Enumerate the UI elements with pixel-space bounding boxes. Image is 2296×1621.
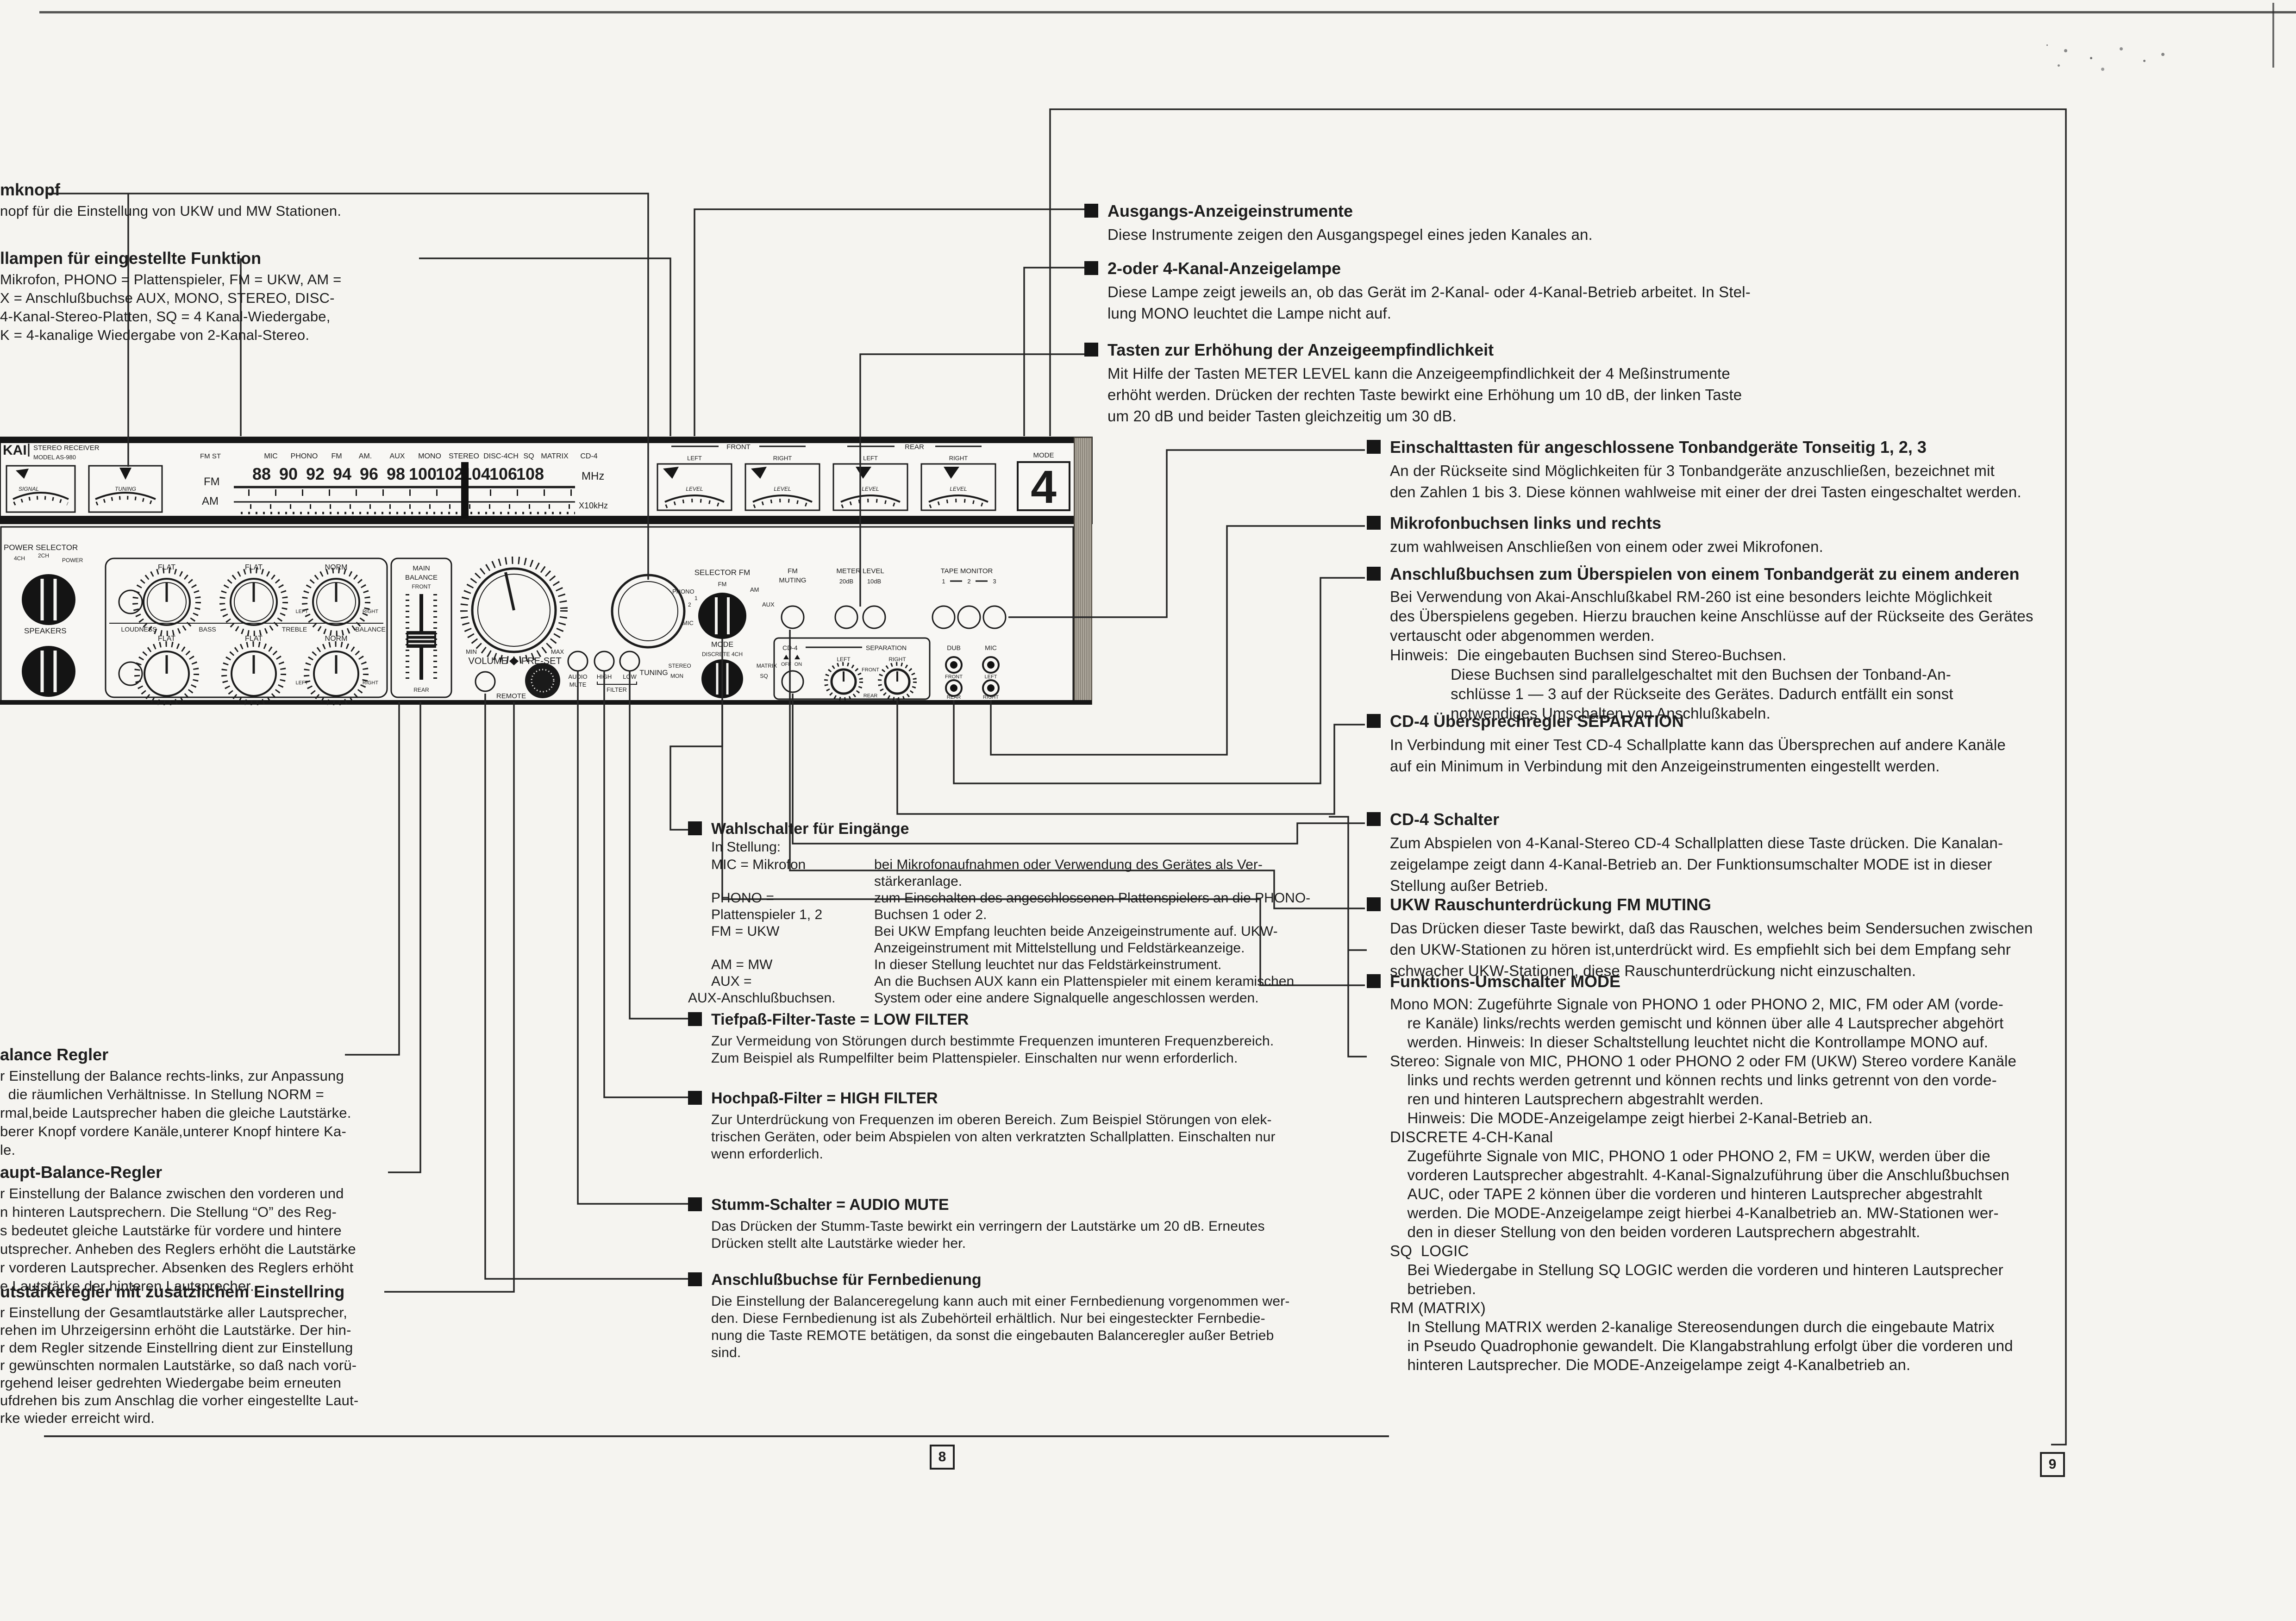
section-body: Die Einstellung der Balanceregelung kann…	[711, 1293, 1383, 1361]
tape-monitor-3-button[interactable]	[983, 606, 1006, 628]
selector-intro: In Stellung:	[711, 838, 1364, 857]
tone-bottom-labels: FLAT FLAT NORM	[158, 635, 347, 643]
section-heading: aupt-Balance-Regler	[0, 1163, 384, 1182]
section-heading: Tasten zur Erhöhung der Anzeigeempfindli…	[1107, 341, 1494, 359]
section-balance-control: alance Regler r Einstellung der Balance …	[0, 1045, 384, 1159]
vu-meter-rear-right: LEVEL	[921, 464, 995, 510]
tape-monitor-2-button[interactable]	[958, 606, 980, 628]
svg-text:SIGNAL: SIGNAL	[19, 486, 39, 492]
section-body: In Verbindung mit einer Test CD-4 Schall…	[1390, 734, 2061, 777]
svg-text:3: 3	[993, 578, 996, 585]
balance-side-labels: LEFT RIGHT LEFT RIGHT	[296, 609, 379, 686]
wood-side-panel	[1074, 438, 1092, 704]
section-bullet-icon	[688, 821, 702, 835]
dub-rear-label: REAR	[947, 695, 961, 700]
cd4-separation-right-knob[interactable]	[880, 664, 915, 699]
svg-text:PHONO: PHONO	[291, 452, 318, 460]
front-balance-knob[interactable]	[305, 570, 368, 633]
power-selector-knob[interactable]: POWER SELECTOR 4CH 2CH POWER	[4, 543, 83, 625]
section-body: Mit Hilfe der Tasten METER LEVEL kann di…	[1107, 363, 2080, 427]
section-heading: Ausgangs-Anzeigeinstrumente	[1107, 202, 1353, 220]
svg-text:MON: MON	[670, 673, 683, 679]
svg-text:VOLUME: VOLUME	[469, 656, 507, 666]
svg-text:BALANCE: BALANCE	[355, 626, 385, 633]
section-heading: Stumm-Schalter = AUDIO MUTE	[711, 1195, 949, 1214]
svg-text:FRONT: FRONT	[412, 583, 431, 590]
meter-level-10db: 10dB	[867, 578, 881, 585]
section-bullet-icon	[1367, 974, 1381, 988]
svg-text:LEFT: LEFT	[837, 656, 851, 663]
svg-text:92: 92	[306, 464, 325, 483]
selector-row: MIC = Mikrofon bei Mikrofonaufnahmen ode…	[711, 857, 1364, 890]
tape-monitor-label: TAPE MONITOR	[941, 567, 993, 575]
vu-meter-front-left: LEVEL	[657, 464, 732, 510]
section-remote-jack: Anschlußbuchse für Fernbedienung Die Ein…	[688, 1271, 1383, 1361]
dial-strip: KAI STEREO RECEIVER MODEL AS-980 SIGNAL …	[0, 438, 1092, 704]
svg-text:AUDIO: AUDIO	[568, 673, 587, 680]
section-bullet-icon	[1367, 897, 1381, 911]
section-heading: Anschlußbuchsen zum Überspielen von eine…	[1390, 565, 2020, 583]
svg-text:AM.: AM.	[359, 452, 372, 460]
svg-text:DISC-4CH: DISC-4CH	[483, 452, 519, 460]
function-lamp-labels: MIC PHONO FM AM. AUX MONO STEREO DISC-4C…	[264, 452, 597, 460]
section-body: Das Drücken der Stumm-Taste bewirkt ein …	[711, 1218, 1383, 1252]
svg-text:STEREO: STEREO	[449, 452, 479, 460]
cd4-on-off-button[interactable]	[782, 671, 803, 692]
section-cd4-separation: CD-4 Übersprechregler SEPARATION In Verb…	[1367, 712, 2061, 777]
svg-text:MUTE: MUTE	[569, 681, 587, 688]
section-bullet-icon	[1084, 261, 1098, 275]
svg-text:DISCRETE 4CH: DISCRETE 4CH	[702, 651, 743, 657]
svg-text:PHONO: PHONO	[672, 588, 694, 595]
svg-text:NORM: NORM	[325, 563, 348, 571]
svg-text:FRONT: FRONT	[726, 443, 751, 451]
section-body: Diese Lampe zeigt jeweils an, ob das Ger…	[1107, 282, 2080, 324]
svg-text:LEVEL: LEVEL	[862, 486, 879, 492]
svg-text:RIGHT: RIGHT	[888, 656, 906, 663]
section-bullet-icon	[1367, 567, 1381, 581]
mic-left-label: LEFT	[985, 674, 997, 680]
svg-text:SPEAKERS: SPEAKERS	[24, 626, 67, 635]
svg-text:CD-4: CD-4	[580, 452, 597, 460]
treble-knob-rear[interactable]	[224, 644, 283, 703]
section-heading: 2-oder 4-Kanal-Anzeigelampe	[1107, 259, 1341, 278]
section-high-filter: Hochpaß-Filter = HIGH FILTER Zur Unterdr…	[688, 1089, 1383, 1163]
meter-level-10db-button[interactable]	[863, 606, 885, 628]
section-bullet-icon	[1367, 812, 1381, 826]
section-heading: Hochpaß-Filter = HIGH FILTER	[711, 1089, 938, 1108]
tone-top-labels: FLAT FLAT NORM	[158, 563, 347, 571]
tuning-meter: TUNING	[89, 466, 162, 512]
section-body: Zur Unterdrückung von Frequenzen im ober…	[711, 1111, 1383, 1163]
svg-text:POWER SELECTOR: POWER SELECTOR	[4, 543, 78, 552]
svg-text:100: 100	[409, 464, 437, 483]
section-heading: Wahlschalter für Eingänge	[711, 820, 909, 838]
loudness-button[interactable]	[119, 590, 142, 613]
svg-text:LEFT: LEFT	[296, 680, 308, 686]
section-heading: UKW Rauschunterdrückung FM MUTING	[1390, 895, 1711, 914]
section-body: zum wahlweisen Anschließen von einem ode…	[1390, 536, 2061, 557]
bass-knob-rear[interactable]	[137, 644, 196, 703]
svg-text:REAR: REAR	[905, 443, 924, 451]
signal-meter: SIGNAL	[6, 466, 75, 512]
section-bullet-icon	[688, 1091, 702, 1105]
bottom-rule	[44, 1435, 1389, 1437]
dub-rear-jack[interactable]	[946, 680, 962, 696]
svg-text:RIGHT: RIGHT	[773, 455, 792, 462]
svg-text:108: 108	[516, 464, 544, 483]
svg-text:MODE: MODE	[711, 641, 733, 649]
speakers-selector-knob[interactable]: SPEAKERS	[22, 626, 75, 697]
fm-muting-label2: MUTING	[779, 576, 806, 584]
section-body: r Einstellung der Gesamtlautstärke aller…	[0, 1304, 384, 1427]
selector-row: FM = UKW Bei UKW Empfang leuchten beide …	[711, 923, 1364, 957]
svg-text:LEFT: LEFT	[687, 455, 702, 462]
svg-text:MATRIX: MATRIX	[541, 452, 569, 460]
selector-row: AM = MW In dieser Stellung leuchtet nur …	[711, 957, 1364, 973]
mic-left-jack[interactable]	[983, 657, 999, 673]
filter-labels: AUDIO MUTE HIGH LOW FILTER	[568, 673, 637, 693]
section-volume-with-preset-ring: utstärkeregler mit zusätzlichem Einstell…	[0, 1283, 384, 1427]
fm-muting-button[interactable]	[782, 606, 804, 628]
section-dubbing-jacks: Anschlußbuchsen zum Überspielen von eine…	[1367, 565, 2061, 723]
svg-text:REAR: REAR	[863, 693, 878, 699]
section-bullet-icon	[1084, 343, 1098, 357]
svg-text:FLAT: FLAT	[158, 563, 175, 571]
svg-text:AUX: AUX	[390, 452, 405, 460]
section-tuning-knob: mknopf nopf für die Einstellung von UKW …	[0, 181, 384, 220]
section-heading: alance Regler	[0, 1045, 384, 1064]
audio-mute-button[interactable]	[568, 651, 588, 671]
svg-text:SELECTOR FM: SELECTOR FM	[694, 568, 751, 577]
svg-text:90: 90	[279, 464, 298, 483]
page-number-right: 9	[2040, 1452, 2065, 1477]
vu-meter-labels: FRONT LEFT RIGHT REAR LEFT RIGHT	[671, 443, 982, 462]
remote-button[interactable]	[475, 672, 495, 691]
svg-text:AM: AM	[750, 586, 759, 593]
fm-band-label: FM	[204, 476, 220, 488]
svg-text:MONO: MONO	[418, 452, 441, 460]
x10khz-label: X10kHz	[579, 501, 608, 510]
svg-text:MODEL AS-980: MODEL AS-980	[33, 454, 76, 461]
svg-text:FLAT: FLAT	[158, 635, 175, 643]
svg-text:RIGHT: RIGHT	[949, 455, 968, 462]
volume-knob[interactable]	[464, 560, 564, 660]
tape-monitor-numbers: 1 2 3	[942, 578, 996, 585]
svg-text:FLAT: FLAT	[245, 635, 263, 643]
top-right-edge-mark	[2272, 3, 2274, 68]
svg-text:LEFT: LEFT	[863, 455, 878, 462]
mic-label: MIC	[985, 644, 997, 651]
bass-knob[interactable]	[135, 570, 198, 633]
section-mode-switch: Funktions-Umschalter MODE Mono MON: Zuge…	[1367, 972, 2061, 1374]
svg-text:RIGHT: RIGHT	[363, 680, 379, 686]
section-main-balance-control: aupt-Balance-Regler r Einstellung der Ba…	[0, 1163, 384, 1296]
svg-text:2CH: 2CH	[38, 552, 49, 559]
meter-level-20db-button[interactable]	[835, 606, 857, 628]
manual-page: 8 9 KAI STEREO RECEIVER MODEL AS-980	[0, 0, 2296, 1621]
vu-meter-front-right: LEVEL	[745, 464, 820, 510]
svg-text:FRONT: FRONT	[862, 667, 879, 673]
svg-text:MIC: MIC	[264, 452, 277, 460]
svg-text:KAI: KAI	[3, 443, 27, 458]
svg-text:MODE: MODE	[1033, 451, 1054, 459]
section-bullet-icon	[1084, 204, 1098, 218]
svg-text:NORM: NORM	[325, 635, 348, 643]
section-heading: Anschlußbuchse für Fernbedienung	[711, 1271, 982, 1289]
svg-text:BASS: BASS	[199, 626, 216, 633]
svg-text:MAIN: MAIN	[413, 564, 430, 572]
svg-text:96: 96	[360, 464, 378, 483]
cd4-separation-left-knob[interactable]	[826, 664, 861, 699]
svg-text:102: 102	[436, 464, 463, 483]
svg-text:FM: FM	[331, 452, 342, 460]
mhz-label: MHz	[582, 470, 604, 482]
tape-monitor-1-button[interactable]	[932, 606, 955, 628]
svg-text:TREBLE: TREBLE	[282, 626, 307, 633]
input-selector-knob[interactable]: SELECTOR FM FM AM AUX PHONO 1 2 MIC	[672, 568, 775, 639]
section-heading: llampen für eingestellte Funktion	[0, 249, 384, 268]
volume-caption: VOLUME PRE-SET	[469, 656, 562, 666]
svg-text:SEPARATION: SEPARATION	[866, 644, 907, 651]
svg-text:CD-4: CD-4	[782, 644, 798, 651]
treble-knob[interactable]	[222, 570, 285, 633]
section-body: Zur Vermeidung von Störungen durch besti…	[711, 1033, 1383, 1067]
svg-text:FM: FM	[718, 581, 727, 588]
page-number-left: 8	[930, 1445, 955, 1470]
tuning-knob[interactable]	[612, 575, 684, 647]
fm-muting-label1: FM	[788, 567, 798, 575]
selector-row: PHONO = Plattenspieler 1, 2 zum Einschal…	[711, 890, 1364, 923]
section-mic-jacks: Mikrofonbuchsen links und rechts zum wah…	[1367, 514, 2061, 557]
section-body: Diese Instrumente zeigen den Ausgangspeg…	[1107, 224, 2080, 245]
loudness-button-rear[interactable]	[119, 662, 142, 685]
meter-level-label: METER LEVEL	[836, 567, 884, 575]
svg-text:FILTER: FILTER	[607, 686, 627, 693]
mic-right-jack[interactable]	[983, 680, 999, 696]
mic-right-label: RIGHT	[983, 695, 999, 700]
svg-text:LOUDNESS: LOUDNESS	[121, 626, 156, 633]
svg-text:LOW: LOW	[623, 673, 637, 680]
svg-text:94: 94	[333, 464, 351, 483]
control-panel: POWER SELECTOR 4CH 2CH POWER SPEAKERS FL…	[0, 527, 1092, 705]
scan-speckles	[2046, 44, 2048, 46]
section-bullet-icon	[688, 1272, 702, 1286]
fm-dial-scale: 88 90 92 94 96 98 100 102 104 106 108	[252, 464, 544, 483]
svg-text:1: 1	[942, 578, 945, 585]
section-body: nopf für die Einstellung von UKW und MW …	[0, 202, 384, 220]
svg-text:REAR: REAR	[413, 687, 429, 693]
svg-text:MIC: MIC	[682, 620, 694, 626]
vu-meter-rear-left: LEVEL	[833, 464, 907, 510]
section-low-filter: Tiefpaß-Filter-Taste = LOW FILTER Zur Ve…	[688, 1010, 1383, 1067]
svg-text:TUNING: TUNING	[115, 486, 136, 492]
high-filter-button[interactable]	[594, 651, 614, 671]
cd4-separation-group: CD-4 SEPARATION OFF ON LEFT RIGHT FRONT	[774, 638, 930, 699]
section-bullet-icon	[1367, 516, 1381, 530]
dub-front-jack[interactable]	[946, 657, 962, 673]
low-filter-button[interactable]	[620, 651, 639, 671]
dub-label: DUB	[947, 644, 961, 651]
section-body: r Einstellung der Balance zwischen den v…	[0, 1184, 384, 1296]
svg-text:STEREO: STEREO	[668, 663, 691, 669]
section-tape-monitor-buttons: Einschalttasten für angeschlossene Tonba…	[1367, 438, 2061, 503]
main-balance-slider[interactable]: MAIN BALANCE FRONT REAR	[391, 558, 451, 697]
section-audio-mute: Stumm-Schalter = AUDIO MUTE Das Drücken …	[688, 1195, 1383, 1252]
svg-text:MATRIX: MATRIX	[757, 663, 777, 669]
mode-channel-display: MODE 4	[1018, 451, 1070, 513]
section-body: Bei Verwendung von Akai-Anschlußkabel RM…	[1390, 587, 2061, 723]
svg-text:BALANCE: BALANCE	[405, 574, 438, 582]
section-bullet-icon	[1367, 440, 1381, 454]
section-output-meters: Ausgangs-Anzeigeinstrumente Diese Instru…	[1084, 202, 2080, 245]
svg-text:LEVEL: LEVEL	[774, 486, 791, 492]
section-heading: Funktions-Umschalter MODE	[1390, 972, 1620, 991]
section-heading: Tiefpaß-Filter-Taste = LOW FILTER	[711, 1010, 969, 1029]
svg-text:1: 1	[694, 595, 698, 601]
dub-front-label: FRONT	[945, 674, 963, 680]
mode-knob[interactable]: MODE DISCRETE 4CH STEREO MON MATRIX SQ	[668, 641, 777, 698]
svg-text:98: 98	[387, 464, 405, 483]
svg-text:PRE-SET: PRE-SET	[521, 656, 562, 666]
top-edge-rule	[39, 11, 2296, 13]
remote-label: REMOTE	[496, 692, 526, 700]
svg-text:4: 4	[1031, 461, 1057, 513]
section-body: An der Rückseite sind Möglichkeiten für …	[1390, 460, 2061, 503]
section-channel-lamp: 2-oder 4-Kanal-Anzeigelampe Diese Lampe …	[1084, 259, 2080, 324]
section-fm-muting: UKW Rauschunterdrückung FM MUTING Das Dr…	[1367, 895, 2061, 982]
section-body: r Einstellung der Balance rechts-links, …	[0, 1067, 384, 1159]
section-heading: Mikrofonbuchsen links und rechts	[1390, 514, 1661, 532]
svg-text:ON: ON	[795, 662, 802, 667]
section-heading: CD-4 Schalter	[1390, 810, 1499, 829]
section-body: Zum Abspielen von 4-Kanal-Stereo CD-4 Sc…	[1390, 832, 2061, 896]
section-heading: CD-4 Übersprechregler SEPARATION	[1390, 712, 1684, 731]
svg-text:STEREO RECEIVER: STEREO RECEIVER	[33, 444, 100, 452]
svg-text:88: 88	[252, 464, 271, 483]
tone-group-frame	[106, 558, 387, 697]
svg-text:FLAT: FLAT	[245, 563, 263, 571]
svg-text:LEVEL: LEVEL	[686, 486, 703, 492]
svg-text:LEFT: LEFT	[296, 609, 308, 614]
section-heading: utstärkeregler mit zusätzlichem Einstell…	[0, 1283, 384, 1301]
svg-text:106: 106	[489, 464, 517, 483]
am-band-label: AM	[202, 495, 219, 507]
section-function-lamps: llampen für eingestellte Funktion Mikrof…	[0, 249, 384, 344]
section-bullet-icon	[688, 1197, 702, 1211]
svg-text:AUX: AUX	[762, 601, 775, 608]
meter-level-20db: 20dB	[839, 578, 853, 585]
svg-text:SQ: SQ	[760, 673, 768, 679]
volume-min-label: MIN	[466, 648, 477, 655]
section-body: Mikrofon, PHONO = Plattenspieler, FM = U…	[0, 270, 384, 344]
svg-text:4CH: 4CH	[14, 555, 25, 562]
section-heading: Einschalttasten für angeschlossene Tonba…	[1390, 438, 1927, 457]
tuning-knob-label: TUNING	[639, 669, 668, 677]
section-bullet-icon	[1367, 714, 1381, 728]
section-bullet-icon	[688, 1012, 702, 1026]
fm-stereo-lamp-label: FM ST	[200, 452, 221, 460]
section-body: Mono MON: Zugeführte Signale von PHONO 1…	[1390, 995, 2061, 1374]
svg-text:POWER: POWER	[62, 557, 83, 563]
svg-text:104: 104	[463, 464, 490, 483]
svg-text:SQ: SQ	[523, 452, 534, 460]
selector-row: AUX-Anschlußbuchsen. System oder eine an…	[688, 990, 1364, 1007]
receiver-front-panel: KAI STEREO RECEIVER MODEL AS-980 SIGNAL …	[0, 434, 1093, 705]
svg-text:HIGH: HIGH	[597, 673, 612, 680]
svg-text:LEVEL: LEVEL	[950, 486, 967, 492]
svg-text:2: 2	[967, 578, 970, 585]
preset-ring-knob[interactable]	[525, 663, 560, 698]
tone-strip-labels: LOUDNESS BASS TREBLE BALANCE	[121, 626, 385, 633]
section-cd4-switch: CD-4 Schalter Zum Abspielen von 4-Kanal-…	[1367, 810, 2061, 896]
selector-row: AUX = An die Buchsen AUX kann ein Platte…	[711, 973, 1364, 990]
volume-max-label: MAX	[551, 648, 564, 655]
diamond-icon	[509, 657, 519, 665]
svg-text:RIGHT: RIGHT	[363, 609, 379, 614]
rear-balance-knob[interactable]	[307, 644, 366, 703]
section-meter-sensitivity: Tasten zur Erhöhung der Anzeigeempfindli…	[1084, 341, 2080, 427]
brand-text: KAI STEREO RECEIVER MODEL AS-980	[3, 443, 100, 461]
svg-text:OFF: OFF	[781, 662, 791, 667]
section-input-selector: Wahlschalter für Eingänge In Stellung: M…	[688, 820, 1364, 1007]
tuning-pointer[interactable]	[461, 462, 469, 519]
svg-text:2: 2	[688, 601, 691, 608]
section-heading: mknopf	[0, 181, 384, 199]
